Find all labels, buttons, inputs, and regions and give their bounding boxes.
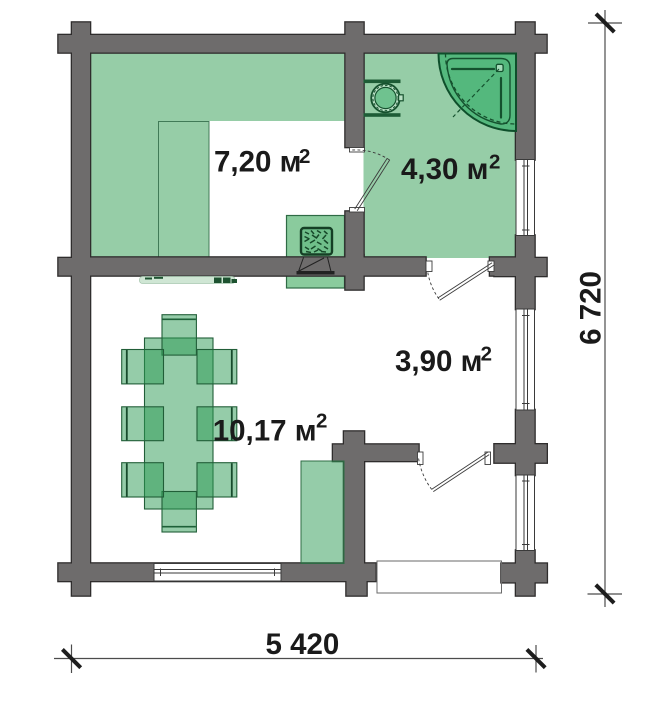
svg-text:2: 2 xyxy=(299,145,310,168)
svg-text:2: 2 xyxy=(481,342,492,365)
svg-text:7,20 м: 7,20 м xyxy=(214,146,301,179)
svg-text:6 720: 6 720 xyxy=(575,271,608,345)
svg-text:2: 2 xyxy=(316,409,327,432)
svg-text:2: 2 xyxy=(489,150,500,173)
svg-text:5 420: 5 420 xyxy=(266,628,340,661)
svg-text:3,90 м: 3,90 м xyxy=(395,345,482,378)
svg-text:4,30 м: 4,30 м xyxy=(401,153,488,186)
svg-text:10,17 м: 10,17 м xyxy=(213,414,317,447)
